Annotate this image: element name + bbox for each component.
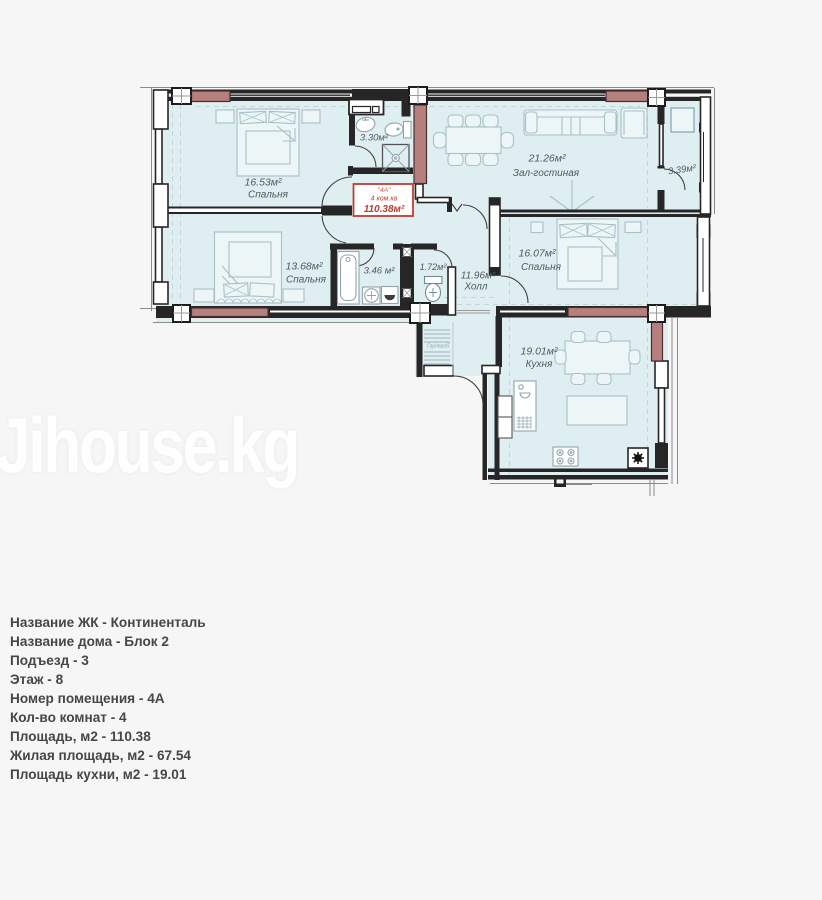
svg-text:21.26м²: 21.26м² <box>528 153 566 165</box>
svg-text:3.30м²: 3.30м² <box>360 133 389 144</box>
svg-text:4 ком.кв: 4 ком.кв <box>371 196 398 203</box>
svg-text:11.96м²: 11.96м² <box>461 271 496 282</box>
svg-text:Гардероб: Гардероб <box>427 344 449 350</box>
svg-text:16.53м²: 16.53м² <box>245 177 282 189</box>
svg-text:Спальня: Спальня <box>286 275 327 286</box>
svg-text:Спальня: Спальня <box>521 262 562 273</box>
svg-text:Спальня: Спальня <box>248 190 289 201</box>
svg-text:3.46 м²: 3.46 м² <box>364 266 396 277</box>
svg-text:Холл: Холл <box>463 282 487 293</box>
svg-text:110.38м²: 110.38м² <box>364 204 405 215</box>
svg-text:Кухня: Кухня <box>526 359 553 370</box>
svg-text:1.72м²: 1.72м² <box>420 262 448 272</box>
svg-text:"4А": "4А" <box>377 187 391 194</box>
svg-text:13.68м²: 13.68м² <box>286 261 323 273</box>
svg-text:19.01м²: 19.01м² <box>521 346 558 358</box>
svg-text:16.07м²: 16.07м² <box>519 248 556 260</box>
svg-text:Зал-гостиная: Зал-гостиная <box>513 168 580 179</box>
